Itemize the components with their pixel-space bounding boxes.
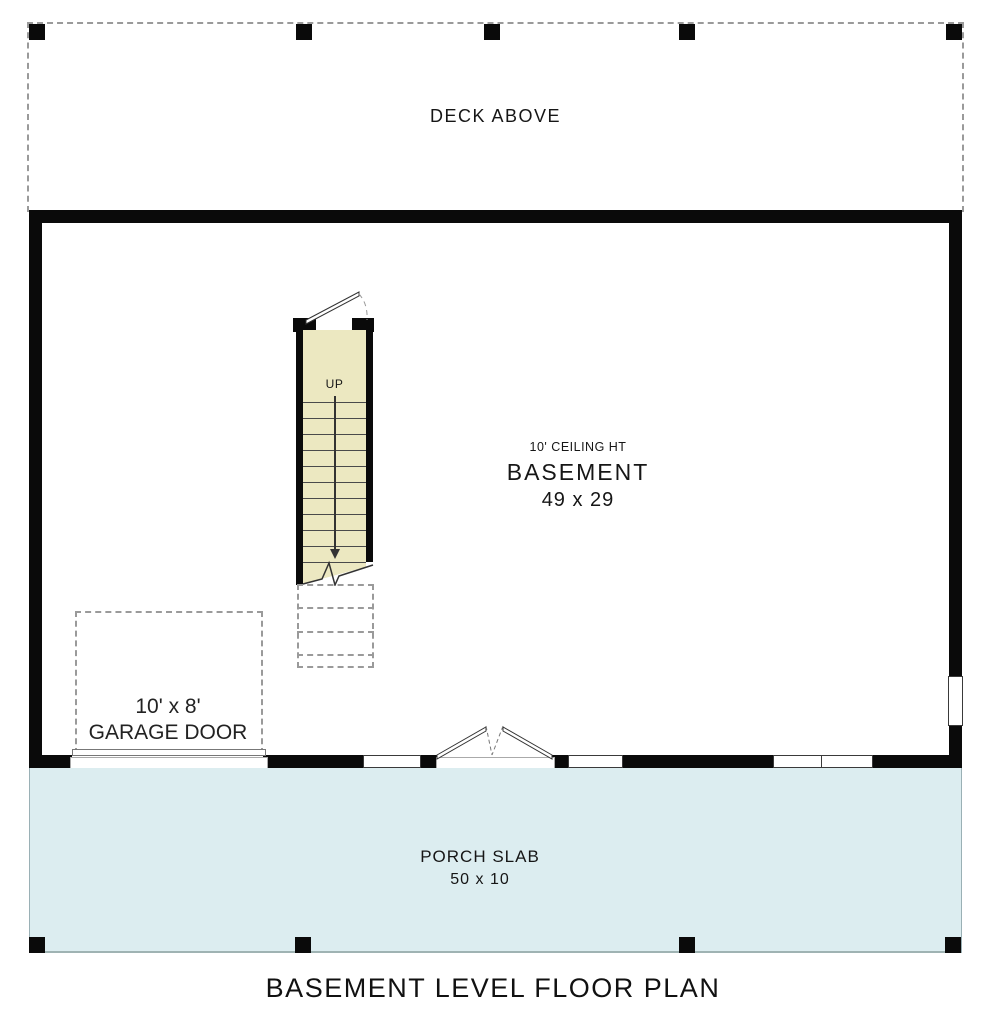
- exterior-wall-left: [29, 210, 42, 768]
- exterior-wall-right-upper: [949, 210, 962, 677]
- deck-post: [679, 24, 695, 40]
- deck-post: [946, 24, 962, 40]
- porch-post: [679, 937, 695, 953]
- room-dimensions: 49 x 29: [478, 489, 678, 512]
- deck-post: [296, 24, 312, 40]
- plan-title: BASEMENT LEVEL FLOOR PLAN: [0, 973, 986, 1004]
- porch-dimensions: 50 x 10: [380, 868, 580, 891]
- floor-plan-canvas: DECK ABOVE UP 10' CEI: [0, 0, 986, 1024]
- room-name: BASEMENT: [478, 459, 678, 486]
- double-door-swing: [430, 698, 572, 760]
- window: [821, 755, 873, 768]
- window: [568, 755, 623, 768]
- garage-door-text: GARAGE DOOR: [61, 720, 275, 746]
- exterior-wall-bottom-segment: [623, 755, 773, 768]
- stairwell-wall-right: [366, 318, 373, 562]
- deck-label: DECK ABOVE: [29, 106, 962, 127]
- window: [363, 755, 421, 768]
- basement-room-label: 10' CEILING HT BASEMENT 49 x 29: [478, 440, 678, 512]
- ceiling-height-note: 10' CEILING HT: [478, 440, 678, 454]
- deck-post: [484, 24, 500, 40]
- exterior-wall-bottom-segment: [263, 755, 363, 768]
- window: [773, 755, 822, 768]
- dashed-tread: [297, 654, 374, 656]
- porch-label: PORCH SLAB 50 x 10: [380, 845, 580, 891]
- garage-door-label: 10' x 8' GARAGE DOOR: [61, 694, 275, 746]
- exterior-wall-bottom-segment: [42, 755, 72, 768]
- exterior-wall-bottom-segment: [873, 755, 949, 768]
- stair-up-label: UP: [303, 377, 366, 391]
- stairwell-wall-left: [296, 318, 303, 585]
- porch-post: [945, 937, 961, 953]
- porch-name: PORCH SLAB: [380, 845, 580, 868]
- dashed-tread: [297, 631, 374, 633]
- porch-post: [29, 937, 45, 953]
- window: [948, 676, 963, 726]
- garage-door-size: 10' x 8': [61, 694, 275, 720]
- stair-break-line: [296, 552, 376, 586]
- garage-door-panel: [72, 749, 266, 756]
- stair-direction-arrow: [334, 396, 336, 549]
- exterior-wall-right-lower: [949, 725, 962, 768]
- deck-above-area: DECK ABOVE: [27, 22, 964, 212]
- dashed-tread: [297, 607, 374, 609]
- stair-door-swing: [297, 284, 375, 332]
- porch-post: [295, 937, 311, 953]
- exterior-wall-top: [29, 210, 962, 223]
- deck-post: [29, 24, 45, 40]
